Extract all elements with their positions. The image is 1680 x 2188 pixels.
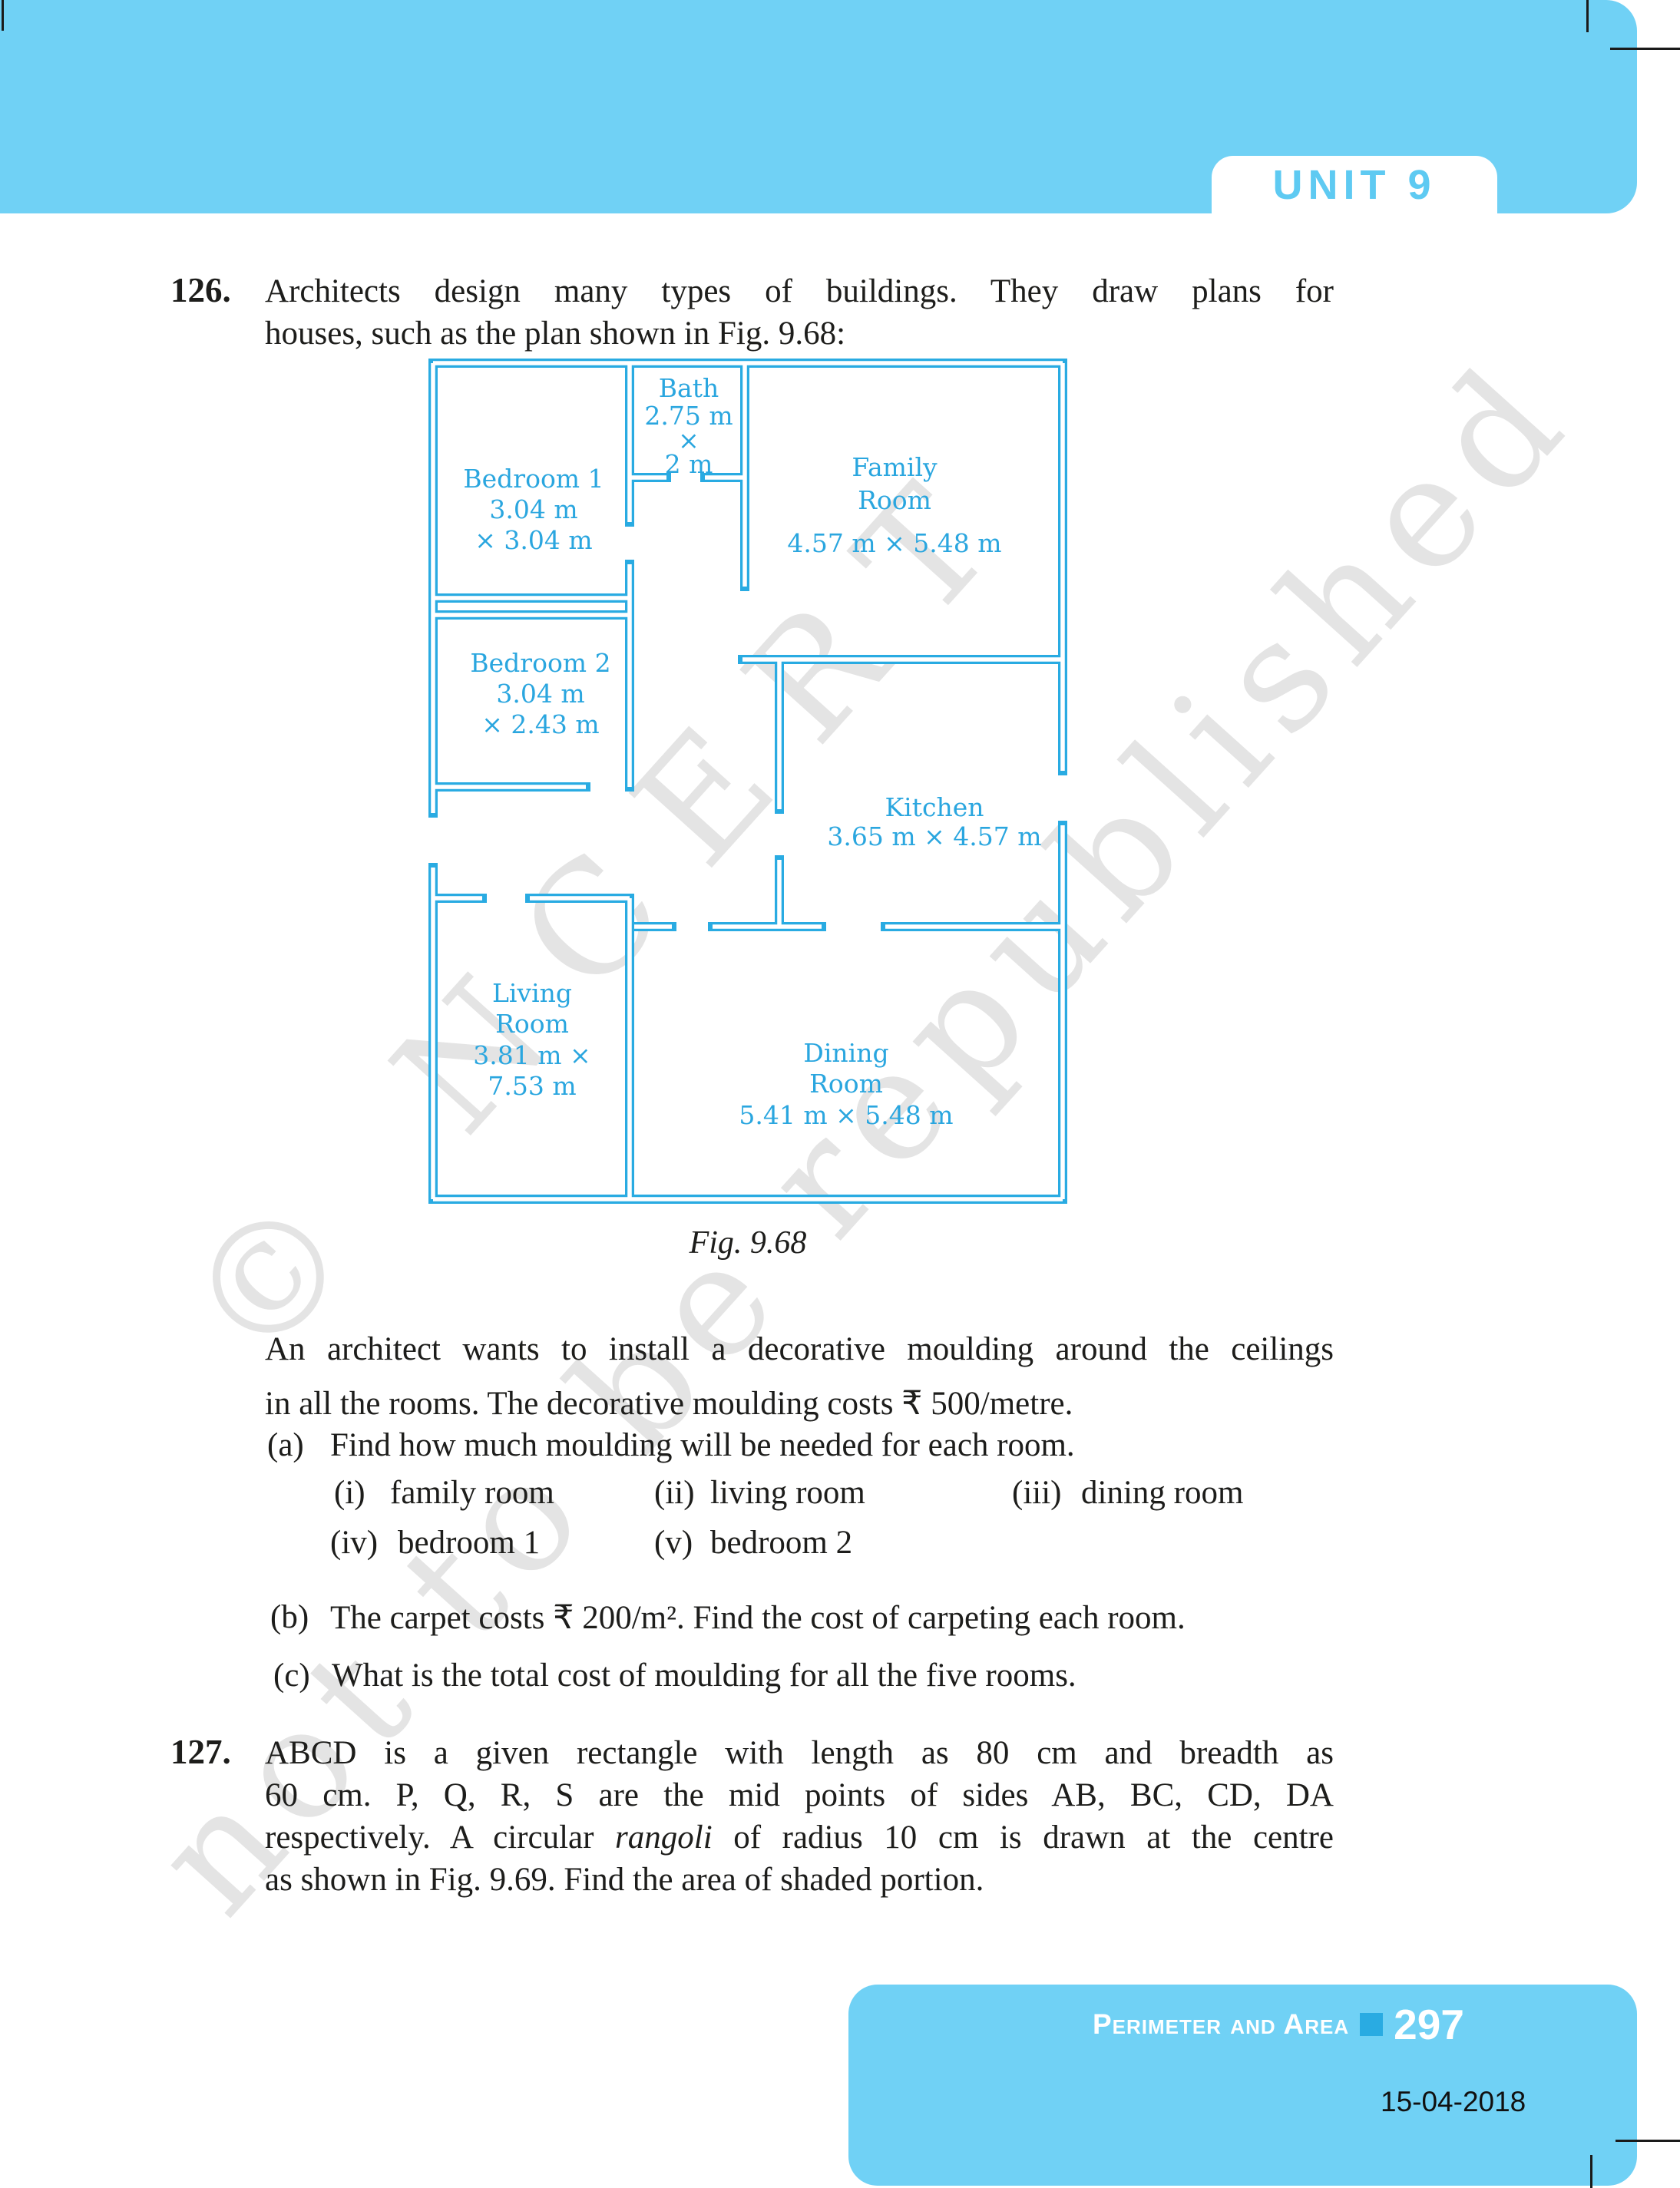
item-ii-label: living room [710, 1474, 865, 1512]
unit-tab: UNIT 9 [1212, 156, 1497, 213]
footer-section-title: Perimeter and Area [1093, 2008, 1349, 2041]
room-label-kitchen: Kitchen [885, 792, 984, 822]
item-i-num: (i) [334, 1474, 365, 1512]
moulding-paragraph: An architect wants to install a decorati… [265, 1322, 1334, 1431]
room-label-family-room: Family [852, 452, 938, 482]
room-label-dining-room: Dining [803, 1038, 888, 1068]
crop-mark-top-left [2, 0, 4, 31]
floor-plan-labels: Bedroom 1 3.04 m × 3.04 m Bath 2.75 m × … [463, 373, 1041, 1130]
room-dim-bedroom1: × 3.04 m [475, 525, 592, 555]
room-label-dining-room: Room [809, 1069, 883, 1099]
part-c-text: What is the total cost of moulding for a… [332, 1657, 1076, 1694]
question-126-number: 126. [170, 270, 231, 310]
room-dim-family-room: 4.57 m × 5.48 m [787, 528, 1001, 558]
question-127-line: ABCD is a given rectangle with length as… [265, 1732, 1334, 1774]
moulding-line: An architect wants to install a decorati… [265, 1322, 1334, 1377]
floor-plan: Bedroom 1 3.04 m × 3.04 m Bath 2.75 m × … [428, 359, 1067, 1204]
moulding-line: in all the rooms. The decorative mouldin… [265, 1377, 1334, 1431]
item-iii-label: dining room [1081, 1474, 1243, 1512]
part-c-num: (c) [273, 1657, 310, 1694]
question-126-text: Architects design many types of building… [265, 270, 1334, 355]
item-v-num: (v) [654, 1524, 693, 1562]
crop-mark-bottom-right-h [1616, 2140, 1680, 2142]
room-dim-bedroom2: × 2.43 m [481, 709, 599, 739]
item-ii-num: (ii) [654, 1474, 695, 1512]
question-126-line: houses, such as the plan shown in Fig. 9… [265, 312, 1334, 355]
unit-label: UNIT 9 [1272, 161, 1436, 209]
q127-line3-pre: respectively. A circular [265, 1819, 615, 1856]
part-a-num: (a) [267, 1426, 304, 1464]
q127-line3-post: of radius 10 cm is drawn at the centre [713, 1819, 1334, 1856]
crop-mark-bottom-right-v [1590, 2155, 1592, 2188]
question-127-line: respectively. A circular rangoli of radi… [265, 1816, 1334, 1859]
room-label-living-room: Living [492, 978, 572, 1008]
footer-band: Perimeter and Area 297 15-04-2018 [848, 1985, 1637, 2186]
question-127-text: ABCD is a given rectangle with length as… [265, 1732, 1334, 1901]
room-label-bedroom2: Bedroom 2 [470, 648, 610, 678]
question-127-number: 127. [170, 1732, 231, 1772]
figure-caption: Fig. 9.68 [428, 1225, 1067, 1261]
item-iv-num: (iv) [330, 1524, 378, 1562]
room-label-living-room: Room [495, 1009, 569, 1039]
room-dim-bedroom1: 3.04 m [489, 494, 577, 524]
question-127-line: as shown in Fig. 9.69. Find the area of … [265, 1859, 1334, 1901]
item-i-label: family room [390, 1474, 554, 1512]
question-126-line: Architects design many types of building… [265, 270, 1334, 312]
item-iv-label: bedroom 1 [398, 1524, 540, 1562]
part-a-text: Find how much moulding will be needed fo… [330, 1426, 1075, 1464]
room-label-bath: Bath [659, 373, 719, 403]
room-dim-bedroom2: 3.04 m [496, 679, 584, 709]
textbook-page: © NCERT not to be republished UNIT 9 126… [0, 0, 1680, 2188]
footer-date: 15-04-2018 [1381, 2086, 1526, 2118]
crop-mark-top-right-v [1586, 0, 1589, 32]
footer-page-number: 297 [1394, 2000, 1464, 2049]
item-iii-num: (iii) [1012, 1474, 1061, 1512]
footer-title: Perimeter and Area 297 [1093, 2000, 1464, 2049]
room-label-family-room: Room [858, 485, 931, 515]
footer-square-icon [1360, 2013, 1383, 2036]
room-dim-dining-room: 5.41 m × 5.48 m [739, 1100, 953, 1130]
question-127-line: 60 cm. P, Q, R, S are the mid points of … [265, 1774, 1334, 1816]
q127-line3-rangoli: rangoli [615, 1819, 713, 1856]
part-b-text: The carpet costs ₹ 200/m². Find the cost… [330, 1598, 1186, 1637]
room-label-bedroom1: Bedroom 1 [463, 464, 604, 494]
part-b-num: (b) [270, 1598, 309, 1636]
room-dim-living-room: 3.81 m × [473, 1040, 590, 1070]
room-dim-living-room: 7.53 m [488, 1071, 576, 1101]
room-dim-kitchen: 3.65 m × 4.57 m [827, 821, 1041, 851]
item-v-label: bedroom 2 [710, 1524, 852, 1562]
crop-mark-top-right-h [1610, 48, 1680, 50]
room-dim-bath: 2 m [665, 449, 713, 479]
